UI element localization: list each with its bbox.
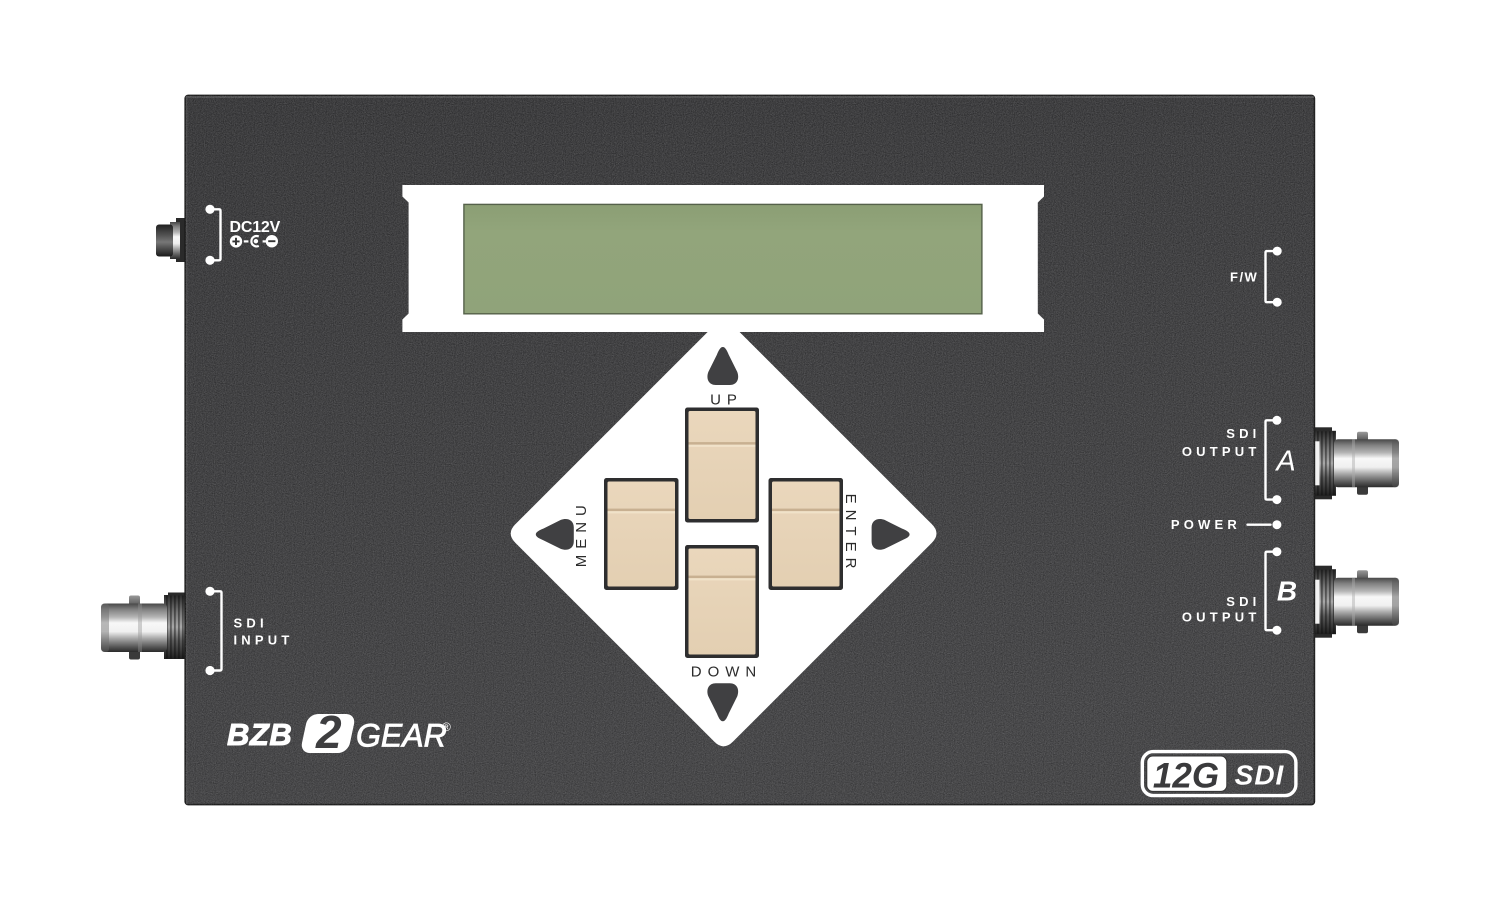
svg-text:®: ® [442,720,451,734]
svg-text:2: 2 [315,706,342,758]
svg-text:INPUT: INPUT [234,633,294,648]
svg-text:UP: UP [710,392,743,409]
svg-text:12G: 12G [1153,757,1219,796]
svg-text:A: A [1274,446,1295,478]
svg-text:ENTER: ENTER [842,494,859,575]
svg-text:OUTPUT: OUTPUT [1182,444,1261,459]
svg-text:DOWN: DOWN [691,664,763,681]
svg-text:F/W: F/W [1230,270,1258,285]
svg-text:SDI: SDI [1226,426,1260,441]
svg-text:BZB: BZB [227,717,292,752]
svg-text:OUTPUT: OUTPUT [1182,610,1261,625]
svg-text:POWER: POWER [1171,517,1241,532]
svg-text:DC12V: DC12V [230,219,281,236]
svg-text:B: B [1277,576,1297,607]
svg-text:SDI: SDI [1235,760,1285,791]
svg-text:GEAR: GEAR [356,718,447,754]
svg-text:MENU: MENU [573,499,590,567]
svg-text:SDI: SDI [234,615,268,630]
svg-text:SDI: SDI [1226,594,1260,609]
